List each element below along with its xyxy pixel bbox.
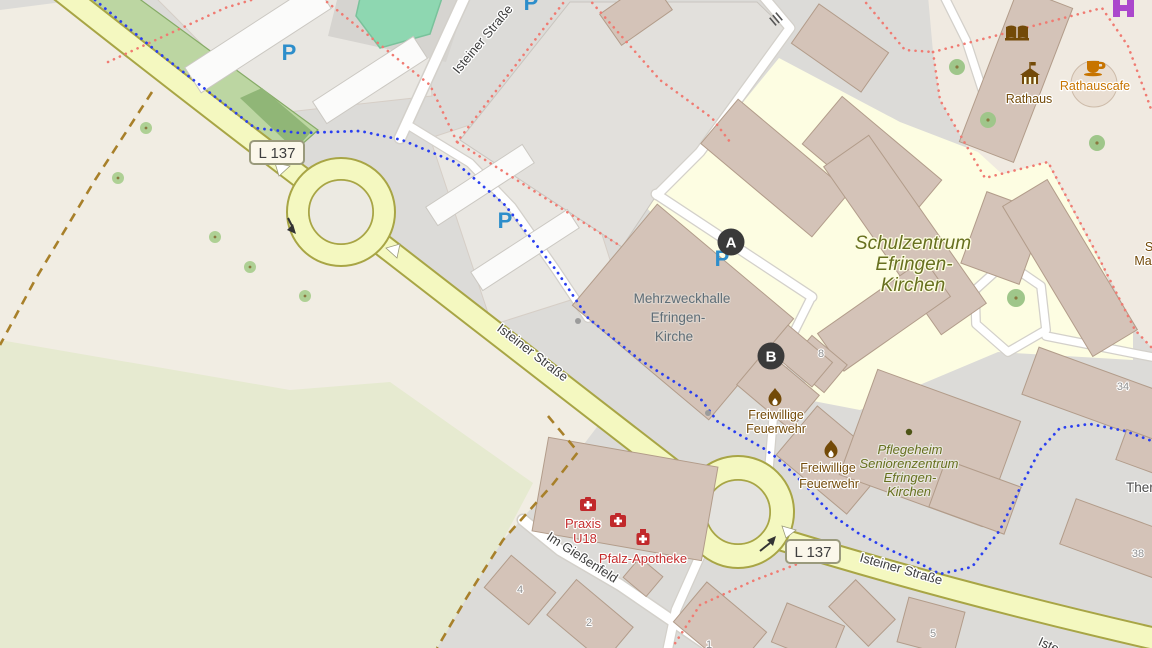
svg-text:Praxis: Praxis	[565, 516, 602, 531]
svg-text:4: 4	[517, 584, 523, 596]
label-edge-partial-1: S	[1145, 240, 1152, 254]
label-rathaus: Rathaus	[1006, 92, 1053, 106]
marker-b[interactable]: B	[758, 343, 785, 370]
svg-text:U18: U18	[573, 531, 597, 546]
svg-text:Schulzentrum: Schulzentrum	[855, 233, 971, 254]
svg-text:A: A	[726, 235, 737, 252]
parking-icon: P	[498, 208, 513, 233]
label-rathauscafe: Rathauscafe	[1060, 79, 1130, 93]
svg-text:Pflegeheim: Pflegeheim	[877, 442, 942, 457]
svg-text:1: 1	[706, 639, 712, 648]
route-badge-l137-south: L 137	[786, 540, 840, 563]
svg-text:38: 38	[1132, 548, 1144, 560]
label-pfalz-apotheke: Pfalz-Apotheke	[599, 551, 687, 566]
svg-text:Efringen-: Efringen-	[875, 254, 952, 275]
path-node	[705, 410, 711, 416]
svg-text:Freiwillige: Freiwillige	[748, 408, 804, 422]
svg-text:Kirchen: Kirchen	[887, 484, 931, 499]
svg-text:L 137: L 137	[259, 145, 296, 162]
svg-text:Seniorenzentrum: Seniorenzentrum	[860, 456, 959, 471]
svg-text:5: 5	[930, 628, 936, 640]
svg-text:Freiwillige: Freiwillige	[800, 461, 856, 475]
map-svg: P P P P	[0, 0, 1152, 648]
svg-text:B: B	[766, 349, 777, 366]
svg-text:Kirchen: Kirchen	[881, 275, 945, 296]
parking-icon: P	[524, 0, 539, 15]
poi-dot	[906, 429, 912, 435]
svg-text:2: 2	[586, 617, 592, 629]
route-badge-l137-north: L 137	[250, 141, 304, 164]
svg-text:Efringen-: Efringen-	[651, 310, 706, 325]
svg-text:L 137: L 137	[795, 544, 832, 561]
marker-a[interactable]: A	[718, 229, 745, 256]
parking-icon: P	[282, 40, 297, 65]
label-edge-partial-2: Ma	[1134, 254, 1151, 268]
svg-text:Mehrzweckhalle: Mehrzweckhalle	[634, 291, 731, 306]
svg-text:34: 34	[1117, 381, 1129, 393]
label-feuerwehr-nord: Freiwillige Feuerwehr	[746, 408, 806, 436]
svg-text:Feuerwehr: Feuerwehr	[799, 477, 859, 491]
svg-text:8: 8	[818, 348, 824, 360]
map-canvas[interactable]: P P P P	[0, 0, 1152, 648]
svg-text:Kirche: Kirche	[655, 329, 693, 344]
svg-text:Efringen-: Efringen-	[884, 470, 937, 485]
label-therme-partial: Ther	[1126, 480, 1152, 495]
path-node	[575, 318, 581, 324]
svg-text:Feuerwehr: Feuerwehr	[746, 422, 806, 436]
